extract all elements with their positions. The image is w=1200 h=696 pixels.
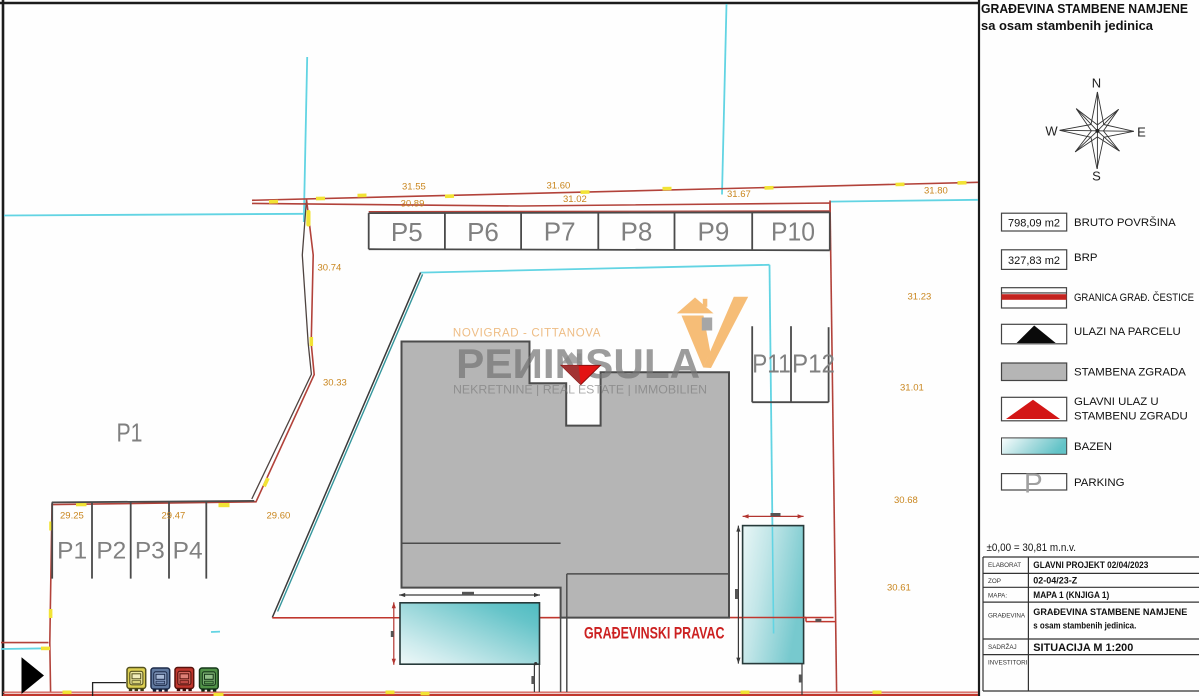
- svg-text:N: N: [1092, 76, 1101, 91]
- svg-text:P2: P2: [96, 538, 126, 565]
- svg-text:02-04/23-Z: 02-04/23-Z: [1033, 576, 1077, 586]
- svg-text:30.89: 30.89: [401, 198, 425, 209]
- svg-text:SADRŽAJ: SADRŽAJ: [988, 642, 1017, 651]
- svg-text:BRUTO POVRŠINA: BRUTO POVRŠINA: [1074, 216, 1176, 229]
- svg-text:P11: P11: [752, 350, 791, 378]
- svg-text:29.25: 29.25: [60, 511, 84, 522]
- svg-text:±0,00 = 30,81 m.n.v.: ±0,00 = 30,81 m.n.v.: [987, 542, 1077, 554]
- svg-text:P1: P1: [57, 538, 87, 565]
- svg-text:ULAZI NA PARCELU: ULAZI NA PARCELU: [1074, 326, 1181, 338]
- svg-text:P7: P7: [544, 217, 576, 247]
- svg-text:327,83 m2: 327,83 m2: [1008, 255, 1060, 267]
- svg-text:31.67: 31.67: [727, 189, 751, 200]
- svg-text:30.74: 30.74: [318, 263, 342, 274]
- svg-text:STAMBENU ZGRADU: STAMBENU ZGRADU: [1074, 411, 1188, 423]
- svg-text:30.68: 30.68: [894, 495, 918, 506]
- svg-text:GRAĐEVINA STAMBENE NAMJENE: GRAĐEVINA STAMBENE NAMJENE: [1033, 607, 1187, 617]
- svg-text:SITUACIJA M 1:200: SITUACIJA M 1:200: [1033, 642, 1133, 654]
- svg-text:BRP: BRP: [1074, 252, 1097, 264]
- svg-text:P3: P3: [135, 538, 165, 565]
- svg-text:GRAĐEVINSKI PRAVAC: GRAĐEVINSKI PRAVAC: [584, 623, 725, 642]
- svg-text:31.80: 31.80: [924, 186, 948, 197]
- svg-text:P5: P5: [391, 217, 423, 247]
- svg-text:30.61: 30.61: [887, 583, 911, 594]
- svg-text:29.60: 29.60: [267, 511, 291, 522]
- svg-text:MAPA:: MAPA:: [988, 593, 1007, 600]
- svg-text:s osam stambenih jedinica.: s osam stambenih jedinica.: [1033, 621, 1136, 631]
- svg-text:798,09 m2: 798,09 m2: [1008, 218, 1060, 230]
- svg-text:NEKRETNINE | REAL ESTATE | IMM: NEKRETNINE | REAL ESTATE | IMMOBILIEN: [453, 383, 707, 397]
- svg-text:P1: P1: [117, 418, 143, 448]
- svg-text:P6: P6: [467, 217, 499, 247]
- svg-text:W: W: [1045, 123, 1058, 138]
- svg-text:ZOP: ZOP: [988, 578, 1001, 585]
- svg-text:S: S: [1092, 169, 1101, 184]
- svg-text:GRANICA GRAĐ. ČESTICE: GRANICA GRAĐ. ČESTICE: [1074, 291, 1194, 304]
- svg-text:31.23: 31.23: [908, 292, 932, 303]
- svg-text:STAMBENA ZGRADA: STAMBENA ZGRADA: [1074, 367, 1186, 379]
- svg-text:31.60: 31.60: [547, 181, 571, 192]
- svg-text:MAPA 1 (KNJIGA 1): MAPA 1 (KNJIGA 1): [1033, 590, 1109, 600]
- svg-text:GRAĐEVINA: GRAĐEVINA: [988, 613, 1026, 620]
- svg-text:P8: P8: [620, 217, 652, 247]
- svg-text:ELABORAT: ELABORAT: [988, 562, 1021, 569]
- svg-text:PARKING: PARKING: [1074, 477, 1125, 489]
- svg-text:31.01: 31.01: [900, 383, 924, 394]
- svg-text:P10: P10: [771, 217, 815, 247]
- svg-text:30.33: 30.33: [323, 378, 347, 389]
- svg-text:31.55: 31.55: [402, 182, 426, 193]
- svg-text:P: P: [1024, 467, 1043, 498]
- svg-text:sa osam stambenih jedinica: sa osam stambenih jedinica: [981, 19, 1154, 33]
- svg-text:GLAVNI ULAZ U: GLAVNI ULAZ U: [1074, 396, 1159, 408]
- svg-text:NOVIGRAD - CITTANOVA: NOVIGRAD - CITTANOVA: [453, 328, 601, 340]
- svg-text:P12: P12: [792, 350, 835, 378]
- svg-text:GRAĐEVINA STAMBENE NAMJENE: GRAĐEVINA STAMBENE NAMJENE: [981, 2, 1188, 16]
- svg-text:INVESTITORI: INVESTITORI: [988, 660, 1028, 667]
- svg-text:GLAVNI PROJEKT 02/04/2023: GLAVNI PROJEKT 02/04/2023: [1033, 560, 1148, 570]
- svg-text:P4: P4: [173, 538, 203, 565]
- svg-text:P9: P9: [697, 217, 729, 247]
- svg-text:E: E: [1137, 124, 1146, 139]
- svg-text:29.47: 29.47: [162, 511, 186, 522]
- svg-text:BAZEN: BAZEN: [1074, 441, 1112, 453]
- svg-text:31.02: 31.02: [563, 194, 587, 205]
